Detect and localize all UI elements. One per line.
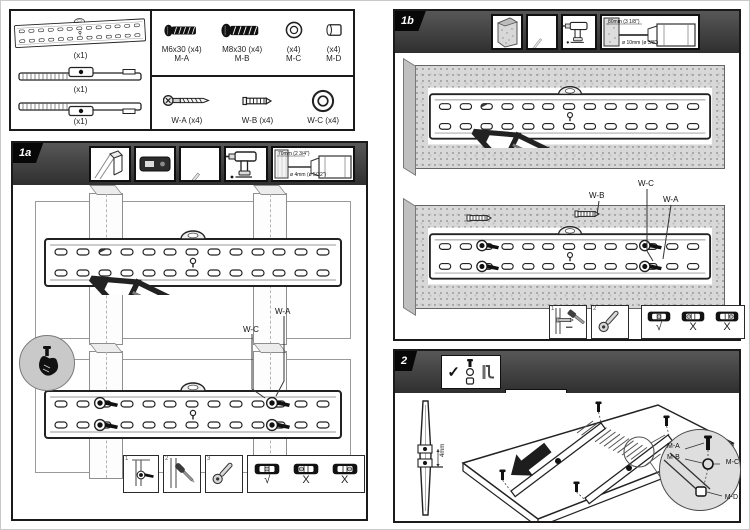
hardware-code: M-A [174, 54, 189, 63]
callout-m-a: M-A [667, 443, 680, 450]
hardware-label: W-A (x4) [171, 116, 202, 125]
panel-1b: 1b 80mm (3 1/8") ø 10mm (ø 3/8" [393, 9, 741, 341]
callout-w-c: W-C [243, 325, 259, 334]
concrete-wall-icon [493, 16, 521, 48]
panel-1a-content: W-A W-C 1 2 [13, 185, 366, 519]
callout-w-a: W-A [275, 307, 290, 316]
step-number: 2 [165, 456, 168, 462]
panel-1b-content: W-C W-B W-A 1 2 [395, 53, 739, 339]
lag-screw-icon [163, 94, 211, 107]
drill-dia-text: ø 4mm (ø 5/32") [290, 172, 327, 178]
pencil-icon [528, 16, 556, 48]
level-check-box: √ X X [247, 455, 365, 493]
step-hammer-anchor: 1 [549, 305, 587, 339]
callout-m-c: M-C [726, 459, 739, 466]
step-badge: 1a [13, 143, 43, 163]
ratchet-step-icon [592, 306, 626, 336]
hammer-anchor-icon [550, 306, 585, 336]
step-number: 1 [125, 456, 128, 462]
callout-w-a: W-A [663, 195, 678, 204]
hardware-row-w: W-A (x4) W-B (x4) W-C (x4) [152, 77, 353, 129]
hardware-detail-circle: M-A M-B M-C M-D [659, 429, 741, 511]
bracket-ok-icon [481, 364, 495, 380]
panel-2-header: 2 ✓ ✗ [395, 351, 739, 393]
drill-depth-text: 70mm (2 3/4") [278, 151, 310, 157]
level-bad-mark: X [723, 322, 730, 333]
anchor-in-wall [466, 212, 492, 224]
drill-dia-text: ø 10mm (ø 3/8") [622, 40, 659, 46]
level-check-box: √ X X [641, 305, 745, 339]
ratchet-step-icon [206, 456, 240, 490]
large-washer-icon [311, 89, 335, 113]
instruction-sheet: (x1) (x1) (x1) M6x30 (x4) M-A M8x30 (x4)… [0, 0, 750, 530]
panel-2: 2 ✓ ✗ [393, 349, 741, 523]
wall-plate-drawing [428, 84, 712, 148]
step-ratchet: 2 [591, 305, 629, 339]
hardware-code: M-C [286, 54, 301, 63]
panel-2-content: 4mm [395, 393, 739, 521]
step-badge: 1b [395, 11, 426, 31]
side-view-dimension: 4mm [440, 444, 446, 457]
wall-plate-mounted-drawing [428, 224, 712, 288]
tv-bracket-part-drawing [17, 98, 143, 118]
marking-illustration [35, 197, 351, 343]
pencil-icon [181, 148, 219, 180]
level-ok-mark: √ [264, 475, 270, 486]
wall-plate-part-drawing [13, 15, 146, 52]
step-number: 1 [551, 306, 554, 312]
correct-mounting-box: ✓ [441, 355, 501, 389]
hardware-row-m: M6x30 (x4) M-A M8x30 (x4) M-B (x4) M-C (… [152, 11, 353, 77]
step-screwdriver: 2 [163, 455, 201, 493]
callout-m-d: M-D [725, 494, 738, 501]
level-right-icon [332, 463, 358, 475]
check-mark: ✓ [447, 365, 460, 380]
panel-1a: 1a 70mm (2 3/4") ø 4mm [11, 141, 368, 521]
anchor-in-wall [574, 208, 600, 220]
hardware-spec: (x4) [327, 45, 341, 54]
hardware-label: W-B (x4) [242, 116, 273, 125]
m8-screw-icon [221, 23, 263, 38]
drill-icon [226, 148, 266, 180]
wall-plate-mounted-drawing [43, 381, 343, 447]
step-number: 3 [207, 456, 210, 462]
wall-plate-drawing [43, 229, 343, 295]
rail-qty-label: (x1) [11, 51, 150, 60]
small-washer-icon [285, 21, 303, 39]
concrete-block-mounted [413, 205, 725, 309]
spacer-icon [325, 23, 343, 37]
step-badge: 2 [395, 351, 417, 371]
hardware-code: M-B [235, 54, 250, 63]
parts-box: (x1) (x1) (x1) M6x30 (x4) M-A M8x30 (x4)… [9, 9, 355, 131]
level-bad-mark: X [689, 322, 696, 333]
tv-bracket-part-drawing [17, 65, 143, 85]
step-insert-screw: 1 [123, 455, 159, 493]
hand-tighten-badge [19, 335, 75, 391]
callout-m-b: M-B [667, 454, 680, 461]
drill-icon [563, 16, 595, 48]
level-bad-mark: X [302, 475, 309, 486]
level-left-icon [293, 463, 319, 475]
hardware-spec: M8x30 (x4) [222, 45, 262, 54]
steps-row: 1 2 √ [549, 305, 745, 339]
level-bad-mark: X [341, 475, 348, 486]
bracket-side-view: 4mm [401, 397, 453, 519]
hardware-label: W-C (x4) [307, 116, 339, 125]
stud-finder-icon [138, 154, 172, 174]
panel-1a-header: 1a 70mm (2 3/4") ø 4mm [13, 143, 366, 185]
hardware-spec: M6x30 (x4) [162, 45, 202, 54]
insert-screw-icon [124, 456, 157, 490]
screw-stack-icon [465, 359, 475, 385]
panel-1b-header: 1b 80mm (3 1/8") ø 10mm (ø 3/8" [395, 11, 739, 53]
level-ok-icon [254, 463, 280, 475]
parts-hardware-column: M6x30 (x4) M-A M8x30 (x4) M-B (x4) M-C (… [152, 11, 353, 129]
hardware-code: M-D [326, 54, 341, 63]
hardware-spec: (x4) [287, 45, 301, 54]
steps-row: 1 2 3 [123, 455, 365, 493]
wall-anchor-icon [240, 94, 274, 108]
rail-qty-label: (x1) [11, 117, 150, 126]
m6-screw-icon [164, 24, 200, 37]
concrete-block-marking [413, 65, 725, 169]
drill-depth-text: 80mm (3 1/8") [608, 19, 640, 25]
parts-rails-column: (x1) (x1) (x1) [11, 11, 152, 129]
drill-depth-diagram: 80mm (3 1/8") ø 10mm (ø 3/8") [602, 16, 698, 48]
drill-depth-diagram: 70mm (2 3/4") ø 4mm (ø 5/32") [273, 148, 353, 180]
level-ok-mark: √ [656, 322, 662, 333]
wall-stud-icon [91, 148, 129, 180]
screwdriver-step-icon [164, 456, 199, 490]
hand-screw-icon [32, 345, 62, 381]
step-ratchet: 3 [205, 455, 243, 493]
rail-qty-label: (x1) [11, 85, 150, 94]
callout-w-b: W-B [589, 191, 604, 200]
step-number: 2 [593, 306, 596, 312]
callout-w-c: W-C [638, 179, 654, 188]
